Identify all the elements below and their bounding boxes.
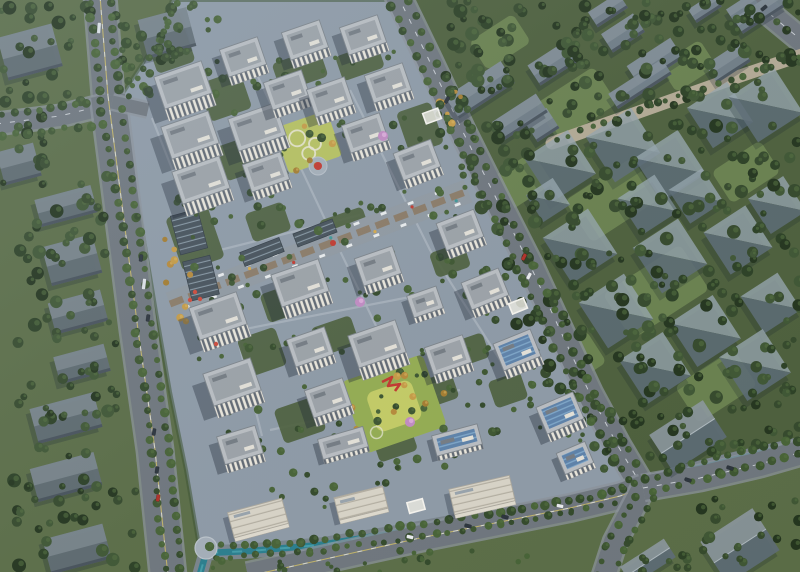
aerial-rendering-stage: [0, 0, 800, 572]
atmospheric-haze-overlay: [0, 0, 800, 572]
aerial-rendering-figure: [0, 0, 800, 572]
aerial-masterplan-rendering: [0, 0, 800, 572]
